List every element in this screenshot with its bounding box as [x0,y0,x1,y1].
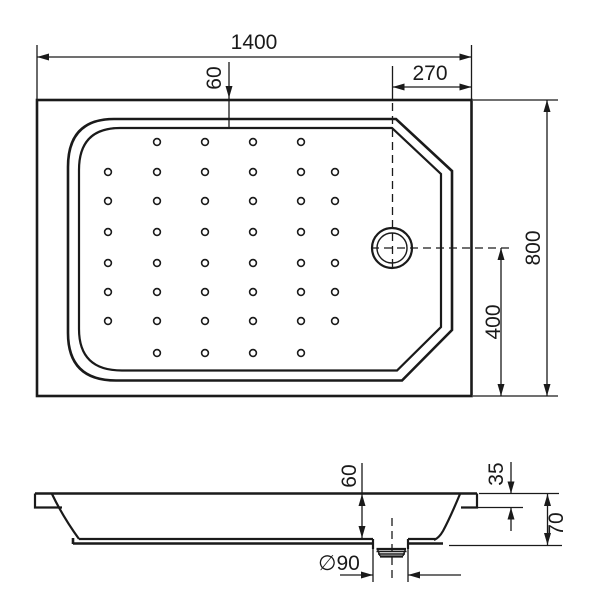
anti-slip-dot [202,198,209,205]
anti-slip-dot [202,350,209,357]
anti-slip-dot [154,260,161,267]
anti-slip-dot [298,318,305,325]
technical-drawing-page: 1400 60 270 800 400 [0,0,600,600]
anti-slip-dot [154,318,161,325]
dim-label-70: 70 [545,512,568,535]
rim-contour-outer [68,119,452,381]
shower-tray-drawing: 1400 60 270 800 400 [0,0,600,600]
dim-overall-depth: 800 [473,100,558,396]
anti-slip-dot [154,289,161,296]
anti-slip-dot [250,350,257,357]
anti-slip-dot [202,260,209,267]
anti-slip-dot [105,318,112,325]
profile-drain-fitting [373,539,408,557]
anti-slip-dot [332,289,339,296]
dim-label-35: 35 [485,462,508,485]
anti-slip-dot [105,289,112,296]
anti-slip-dot [332,318,339,325]
dim-label-400: 400 [482,304,505,339]
anti-slip-dot [202,229,209,236]
profile-right-flange [461,494,477,508]
anti-slip-dot [202,289,209,296]
dim-drain-offset-bottom: 400 [482,248,505,396]
dim-drain-offset-right: 270 [393,62,472,101]
anti-slip-dots [105,139,339,357]
anti-slip-dot [202,139,209,146]
dim-label-800: 800 [522,230,545,265]
anti-slip-dot [250,229,257,236]
anti-slip-dot [154,139,161,146]
dim-overall-width: 1400 [37,31,472,99]
anti-slip-dot [250,139,257,146]
anti-slip-dot [154,198,161,205]
dim-label-1400: 1400 [231,31,278,54]
anti-slip-dot [250,318,257,325]
profile-left-wall [52,494,79,539]
anti-slip-dot [298,350,305,357]
anti-slip-dot [105,169,112,176]
anti-slip-dot [250,198,257,205]
anti-slip-dot [332,260,339,267]
anti-slip-dot [298,260,305,267]
dim-basin-depth: 60 [338,463,366,538]
anti-slip-dot [332,169,339,176]
anti-slip-dot [250,169,257,176]
dim-label-60-top: 60 [203,66,226,89]
anti-slip-dot [154,169,161,176]
dim-label-60-side: 60 [338,464,361,487]
anti-slip-dot [202,318,209,325]
anti-slip-dot [250,289,257,296]
anti-slip-dot [298,169,305,176]
anti-slip-dot [332,229,339,236]
anti-slip-dot [298,198,305,205]
anti-slip-dot [105,229,112,236]
anti-slip-dot [298,139,305,146]
anti-slip-dot [154,350,161,357]
anti-slip-dot [298,289,305,296]
anti-slip-dot [298,229,305,236]
profile-right-wall [434,494,460,540]
anti-slip-dot [105,260,112,267]
dim-label-270: 270 [412,62,447,85]
rim-contour-inner [79,128,441,371]
anti-slip-dot [332,198,339,205]
anti-slip-dot [105,198,112,205]
dim-label-drain-diameter: ∅90 [318,552,360,575]
anti-slip-dot [154,229,161,236]
side-view: 60 35 70 ∅90 [35,462,568,582]
dim-rim-step: 35 [477,462,523,531]
top-view: 1400 60 270 800 400 [37,31,558,396]
anti-slip-dot [250,260,257,267]
anti-slip-dot [202,169,209,176]
dim-rim-inset: 60 [203,62,233,127]
